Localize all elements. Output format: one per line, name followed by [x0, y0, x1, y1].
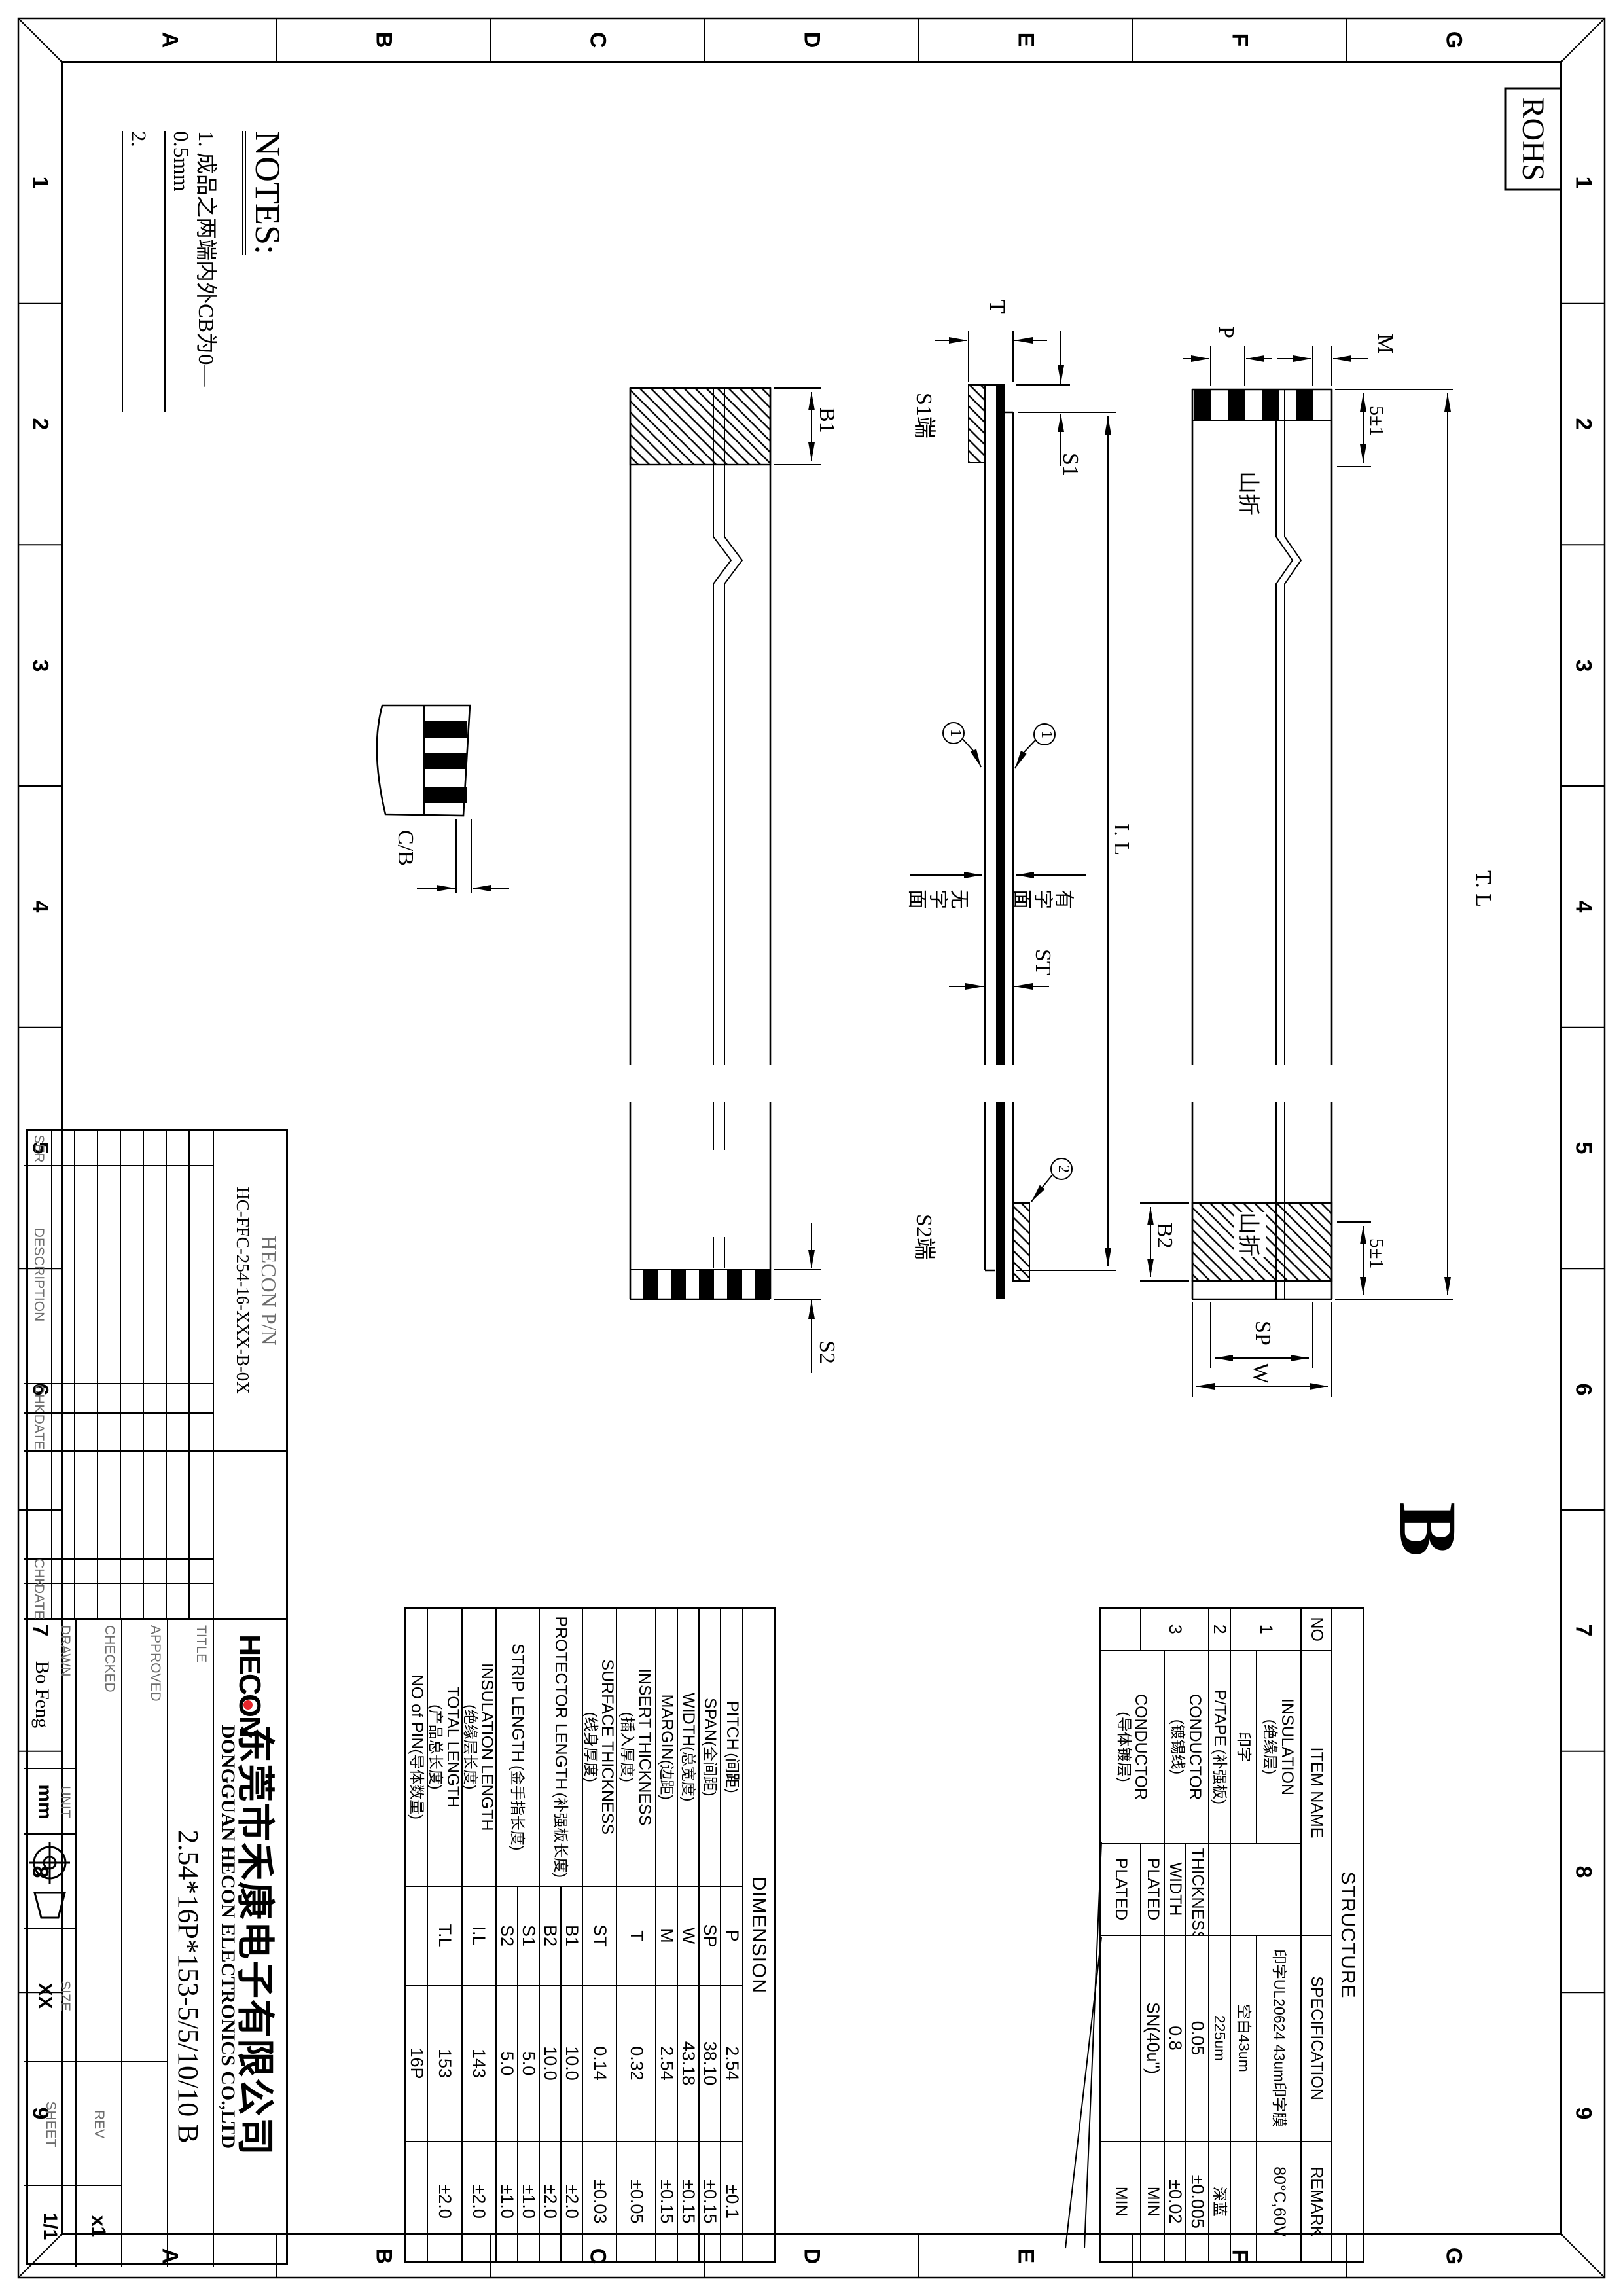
zone-col-label: 1 [27, 177, 53, 189]
title-row: TITLE 2.54*16P*153-5/5/10/10 B [167, 1620, 213, 2267]
structure-title: STRUCTURE [1332, 1608, 1364, 2263]
dim-val: 10.0 [539, 1986, 561, 2142]
rohs-mark: ROHS [1505, 88, 1561, 190]
dim-label-t: T [984, 300, 1009, 314]
cell-remark: MIN [1141, 2142, 1165, 2263]
sheet-value-cell: 1/1 [24, 2186, 75, 2267]
dim-label-5-right: 5±1 [1365, 1238, 1387, 1268]
zone-col-label: 2 [27, 418, 53, 431]
col-header-no: NO [1302, 1608, 1332, 1651]
zone-row-label: B [371, 2248, 397, 2265]
cell-spec: SN(40u") [1141, 1935, 1165, 2142]
dim-label-5-left: 5±1 [1365, 406, 1387, 436]
view-side-edge [969, 385, 1029, 1299]
dim-tol: ±0.15 [678, 2142, 700, 2263]
dim-tol: ±2.0 [427, 2142, 461, 2263]
view-top-folded [1192, 389, 1332, 1299]
sheet-label: SHEET [43, 2062, 58, 2186]
dim-val: 16P [406, 1986, 428, 2142]
dims-view-back [774, 388, 821, 1373]
drawn-label: DRAWN [57, 1625, 73, 1677]
cell-spec: 225um [1209, 1935, 1231, 2142]
dim-label-cb: C/B [393, 830, 418, 866]
dim-label-w: W [1248, 1363, 1273, 1384]
pn-value: HC-FFC-254-16-XXX-B-0X [232, 1131, 253, 1450]
label-s2-end: S2端 [910, 1214, 942, 1260]
dim-sym: I.L [462, 1886, 496, 1986]
dim-name: MARGIN(边距) [656, 1608, 678, 1886]
dim-sym: ST [582, 1886, 616, 1986]
dim-tol [406, 2142, 428, 2263]
rev-col-description: DESCRIPTION [31, 1166, 46, 1383]
cell-no: 1 [1231, 1608, 1302, 1651]
zone-col-label: 8 [1571, 1866, 1596, 1878]
zone-col-label: 6 [1571, 1384, 1596, 1396]
projection-symbol-icon [27, 1838, 73, 1926]
zone-col-label: 7 [1571, 1624, 1596, 1637]
dim-sym: P [721, 1886, 743, 1986]
unit-label: UNIT [57, 1769, 73, 1835]
cell-sub: PLATED [1141, 1844, 1165, 1935]
rev-label: REV [91, 2062, 107, 2186]
dim-label-b1: B1 [814, 407, 839, 433]
cell-spec: 0.8 [1165, 1935, 1186, 2142]
size-value: XX [33, 1929, 56, 2062]
dim-tol: ±2.0 [561, 2142, 582, 2263]
zone-row-label: E [1013, 33, 1039, 48]
dim-sym: S2 [496, 1886, 518, 1986]
zone-row-label: F [1227, 33, 1253, 47]
zone-col-label: 4 [27, 901, 53, 913]
company-name-cn: 东莞市禾康电子有限公司 [231, 1725, 286, 2157]
dim-tol: ±0.15 [656, 2142, 678, 2263]
dim-sym: T.L [427, 1886, 461, 1986]
company-name-en: DONGGUAN HECON ELECTRONICS CO.,LTD [217, 1725, 239, 2149]
sheet-value: 1/1 [39, 2186, 61, 2267]
cell-no: 2 [1209, 1608, 1231, 1651]
cell-item: 印字 [1231, 1651, 1257, 1844]
unit-cell: UNIT mm [24, 1769, 75, 1835]
cell-spec: 空白43um [1231, 1935, 1257, 2142]
title-label: TITLE [193, 1625, 209, 1662]
dim-val: 143 [462, 1986, 496, 2142]
dim-tol: ±1.0 [518, 2142, 539, 2263]
zone-row-label: G [1441, 31, 1467, 48]
dim-val: 153 [427, 1986, 461, 2142]
zone-row-label: G [1441, 2248, 1467, 2265]
company-band: HECON 东莞市禾康电子有限公司 DONGGUAN HECON ELECTRO… [213, 1620, 286, 2267]
rev-cell: REV [75, 2062, 121, 2186]
dim-name: TOTAL LENGTH(产品总长度) [427, 1608, 461, 1886]
dim-sym: M [656, 1886, 678, 1986]
dim-tol: ±1.0 [496, 2142, 518, 2263]
cell-remark: 80°C,60V [1257, 2142, 1302, 2263]
cell-spec: 印字UL20624 43um印字膜 [1257, 1935, 1302, 2142]
drawn-value: Bo Feng [31, 1620, 53, 1769]
label-no-print-side: 无字面 [907, 882, 970, 911]
cell-item: CONDUCTOR(导体镀层) [1101, 1651, 1165, 1844]
drawing-title: 2.54*16P*153-5/5/10/10 B [171, 1718, 205, 2255]
approved-row: APPROVED [121, 1620, 167, 2062]
dim-val: 0.14 [582, 1986, 616, 2142]
dim-label-m: M [1372, 334, 1397, 353]
dim-sym [406, 1886, 428, 1986]
zone-col-label: 2 [1571, 418, 1596, 431]
dim-label-s2: S2 [814, 1340, 839, 1364]
col-header-item: ITEM NAME [1302, 1651, 1332, 1935]
dim-val: 43.18 [678, 1986, 700, 2142]
rev-col-date: DATE [31, 1414, 46, 1450]
zone-col-label: 1 [1571, 177, 1596, 189]
page: 1 2 3 4 5 6 7 8 9 1 2 3 4 5 6 7 8 9 G F … [0, 0, 1623, 2296]
dim-val: 10.0 [561, 1986, 582, 2142]
cell-spec: 0.05 [1186, 1935, 1209, 2142]
cell-item: INSULATION(绝缘层) [1257, 1651, 1302, 1844]
cell-no: 3 [1141, 1608, 1209, 1651]
cell-remark: 深蓝 [1209, 2142, 1231, 2263]
cell-sub: WIDTH [1165, 1844, 1186, 1935]
drawing-sheet: 1 2 3 4 5 6 7 8 9 1 2 3 4 5 6 7 8 9 G F … [0, 0, 1623, 2296]
label-s1-end: S1端 [910, 393, 942, 439]
dim-label-sp: SP [1250, 1321, 1275, 1346]
dim-tol: ±2.0 [462, 2142, 496, 2263]
checked-row: CHECKED [75, 1620, 121, 2062]
structure-table: STRUCTURE NO ITEM NAME SPECIFICATION REM… [1099, 1607, 1364, 2263]
approval-grid-top [213, 1452, 286, 1620]
label-print-side: 有字面 [1012, 882, 1075, 911]
approval-col-date: DATE [31, 1584, 46, 1619]
unit-value: mm [33, 1769, 56, 1835]
dim-label-il: I. L [1109, 823, 1133, 855]
dim-name: NO of PIN(导体数量) [406, 1608, 428, 1886]
cell-sub [1231, 1844, 1302, 1935]
rev-col-chk: CHK [31, 1384, 46, 1412]
cell-item: P/TAPE (补强板) [1209, 1651, 1231, 1844]
rev-value-cell: x1 [75, 2186, 121, 2267]
dim-name: SPAN(全间距) [700, 1608, 721, 1886]
cell-remark [1231, 2142, 1257, 2263]
cell-item: CONDUCTOR(镀锡线) [1165, 1651, 1209, 1844]
zone-row-label: D [799, 32, 825, 48]
dim-name: INSERT THICKNESS(插入厚度) [617, 1608, 656, 1886]
dim-sym: SP [700, 1886, 721, 1986]
dim-val: 38.10 [700, 1986, 721, 2142]
cell-sub: PLATED [1101, 1844, 1141, 1935]
dim-name: SURFACE THICKNESS(线身厚度) [582, 1608, 616, 1886]
cell-spec [1101, 1935, 1141, 2142]
dim-tol: ±0.05 [617, 2142, 656, 2263]
dim-label-b2: B2 [1152, 1223, 1177, 1249]
dim-sym: B1 [561, 1886, 582, 1986]
view-back [630, 388, 770, 1299]
dim-label-s1: S1 [1058, 453, 1082, 476]
pn-label: HECON P/N [257, 1131, 281, 1450]
pn-box: HECON P/N HC-FFC-254-16-XXX-B-0X [213, 1131, 286, 1452]
approval-col-chk: CHK [31, 1558, 46, 1583]
dim-label-tl: T. L [1471, 870, 1495, 907]
checked-label: CHECKED [101, 1625, 117, 1693]
projection-cell [24, 1835, 75, 1929]
dim-label-p: P [1213, 326, 1238, 338]
zone-row-label: E [1013, 2249, 1039, 2264]
zone-col-label: 5 [1571, 1142, 1596, 1155]
size-label: SIZE [57, 1929, 73, 2062]
note-line-2: 2. [122, 131, 150, 412]
dim-name: INSULATION LENGTH(绝缘层长度) [462, 1608, 496, 1886]
zone-row-label: A [157, 32, 183, 48]
revision-grid: SER DESCRIPTION CHK DATE [24, 1131, 213, 1452]
rev-value: x1 [87, 2186, 109, 2267]
zone-row-label: B [371, 32, 397, 48]
dim-name: PROTECTOR LENGTH (补强板长度) [539, 1608, 582, 1886]
zone-col-label: 3 [1571, 660, 1596, 672]
cell-no [1101, 1608, 1141, 1651]
rev-col-ser: SER [31, 1132, 46, 1165]
cell-sub: THICKNESS [1186, 1844, 1209, 1935]
dim-name: PITCH (间距) [721, 1608, 743, 1886]
fold-label-left: 山折 [1234, 471, 1266, 516]
dim-val: 5.0 [518, 1986, 539, 2142]
dim-val: 2.54 [721, 1986, 743, 2142]
zone-row-label: D [799, 2248, 825, 2265]
dim-sym: T [617, 1886, 656, 1986]
cell-remark: MIN [1101, 2142, 1141, 2263]
zone-col-label: 9 [1571, 2108, 1596, 2120]
dim-val: 5.0 [496, 1986, 518, 2142]
col-header-spec: SPECIFICATION [1302, 1935, 1332, 2142]
dim-tol: ±2.0 [539, 2142, 561, 2263]
zone-row-label: C [585, 32, 611, 48]
dim-sym: B2 [539, 1886, 561, 1986]
dim-tol: ±0.03 [582, 2142, 616, 2263]
note-line-1: 1. 成品之两端内外CB为0—0.5mm [164, 131, 224, 412]
sheet-cell: SHEET [24, 2062, 75, 2186]
revision-marker: B [1380, 1502, 1474, 1556]
rev-spacer [121, 2062, 167, 2267]
dim-sym: S1 [518, 1886, 539, 1986]
zone-col-label: 4 [1571, 901, 1596, 913]
cell-remark: ±0.005 [1186, 2142, 1209, 2263]
dim-tol: ±0.15 [700, 2142, 721, 2263]
dim-name: STRIP LENGTH (金手指长度) [496, 1608, 539, 1886]
size-cell: SIZE XX [24, 1929, 75, 2062]
company-logo: HECON [232, 1634, 268, 1736]
notes-block: NOTES: 1. 成品之两端内外CB为0—0.5mm 2. [122, 131, 288, 412]
dim-val: 2.54 [656, 1986, 678, 2142]
dim-val: 0.32 [617, 1986, 656, 2142]
approved-label: APPROVED [147, 1625, 163, 1702]
cell-remark: ±0.02 [1165, 2142, 1186, 2263]
col-header-remark: REMARK [1302, 2142, 1332, 2263]
dimension-table: DIMENSION PITCH (间距) P 2.54 ±0.1 SPAN(全间… [404, 1607, 776, 2263]
dim-sym: W [678, 1886, 700, 1986]
approval-grid: CHK DATE [24, 1452, 213, 1620]
dim-label-st: ST [1030, 949, 1055, 975]
dim-name: WIDTH(总宽度) [678, 1608, 700, 1886]
fold-label-right: 山折 [1234, 1212, 1266, 1257]
zone-col-label: 3 [27, 660, 53, 672]
title-block: HECON P/N HC-FFC-254-16-XXX-B-0X SER DES… [26, 1129, 288, 2265]
drawn-cell: DRAWN Bo Feng [24, 1620, 75, 1769]
notes-title: NOTES: [242, 131, 288, 255]
cell-sub [1209, 1844, 1231, 1935]
dimension-title: DIMENSION [743, 1608, 775, 2263]
structure-leaders [1065, 1842, 1101, 2248]
dim-tol: ±0.1 [721, 2142, 743, 2263]
